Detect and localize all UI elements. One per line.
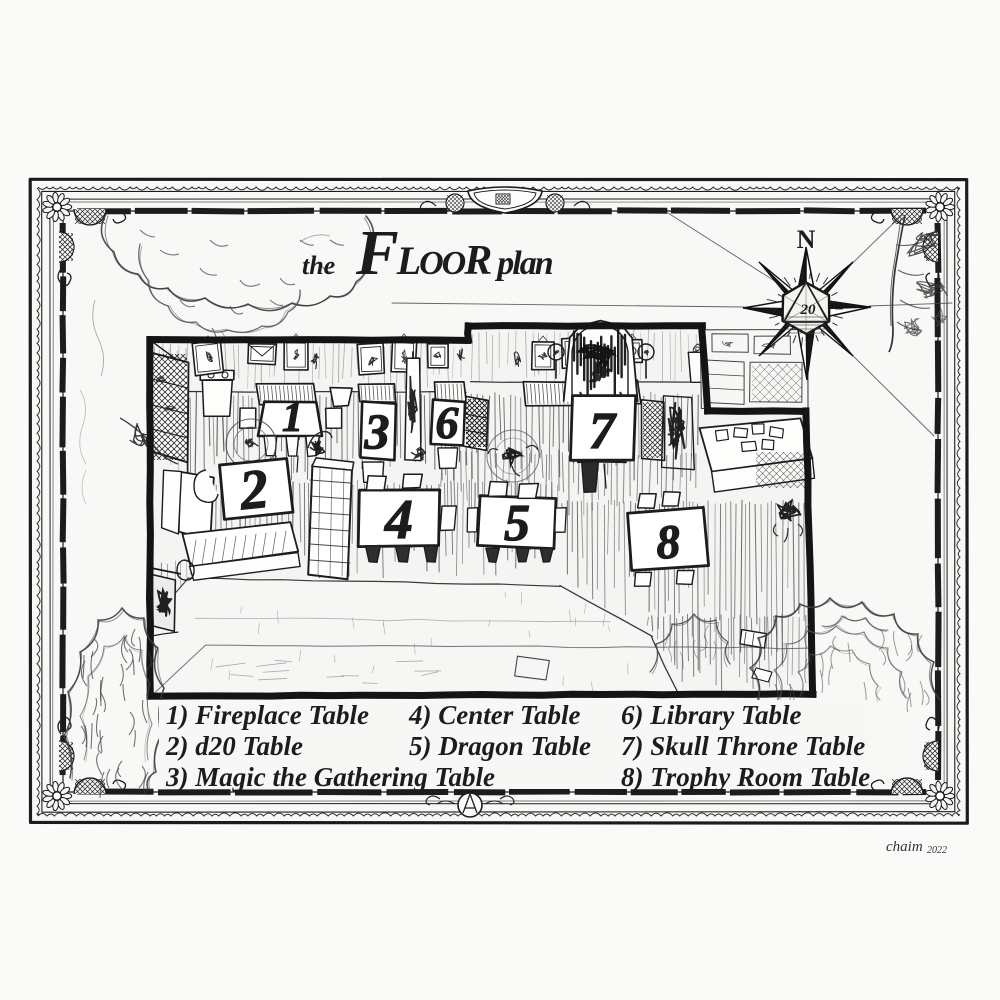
- svg-text:3: 3: [364, 403, 390, 459]
- svg-text:6: 6: [436, 397, 459, 448]
- svg-text:3) Magic the Gathering Table: 3) Magic the Gathering Table: [165, 762, 495, 792]
- svg-text:6) Library Table: 6) Library Table: [621, 700, 801, 730]
- svg-text:20: 20: [800, 302, 817, 318]
- svg-text:4) Center Table: 4) Center Table: [408, 700, 581, 730]
- svg-text:4: 4: [384, 489, 413, 551]
- svg-text:5: 5: [504, 495, 530, 552]
- svg-text:2022: 2022: [927, 845, 947, 856]
- svg-text:N: N: [797, 225, 816, 254]
- svg-text:2) d20 Table: 2) d20 Table: [165, 731, 303, 761]
- svg-text:5) Dragon Table: 5) Dragon Table: [409, 731, 591, 761]
- svg-text:1) Fireplace Table: 1) Fireplace Table: [166, 700, 369, 730]
- svg-text:the: the: [302, 251, 335, 280]
- svg-text:1: 1: [282, 395, 303, 441]
- svg-text:7) Skull Throne Table: 7) Skull Throne Table: [621, 731, 865, 761]
- svg-text:8) Trophy Room Table: 8) Trophy Room Table: [621, 762, 870, 792]
- svg-text:8: 8: [654, 515, 682, 570]
- svg-text:chaim: chaim: [886, 839, 923, 855]
- svg-text:7: 7: [589, 403, 617, 460]
